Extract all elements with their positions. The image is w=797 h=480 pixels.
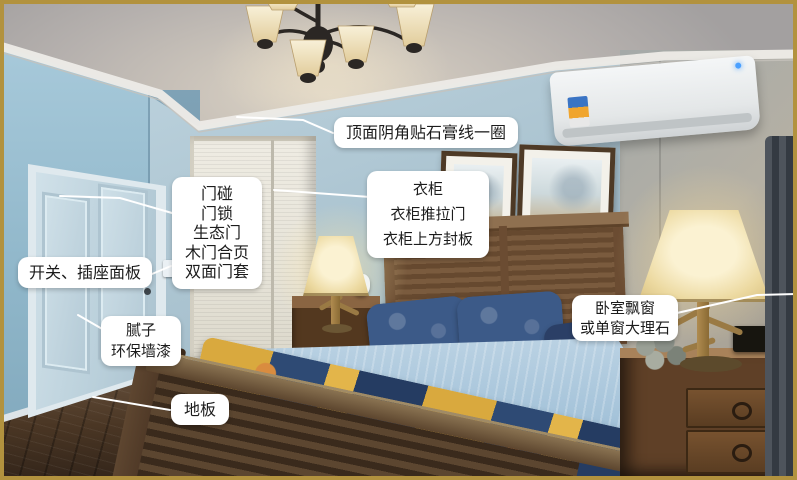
- annotation-floor: 地板: [171, 394, 229, 425]
- large-lamp-base: [680, 356, 742, 372]
- drawer-pull: [732, 444, 752, 462]
- curtain: [765, 136, 793, 480]
- annotation-wardrobe: 衣柜 衣柜推拉门 衣柜上方封板: [367, 171, 489, 258]
- annotation-bay-window: 卧室飘窗 或单窗大理石: [572, 295, 678, 341]
- annotation-wall-finish: 腻子 环保墙漆: [101, 316, 181, 366]
- drawer-pull: [732, 402, 752, 420]
- small-lamp-stem: [331, 294, 340, 326]
- large-lamp-stem: [697, 300, 709, 362]
- wardrobe-door-divider: [271, 140, 274, 356]
- energy-label-sticker: [567, 96, 590, 128]
- annotated-bedroom-photo: 顶面阴角贴石膏线一圈 门碰 门锁 生态门 木门合页 双面门套 开关、插座面板 腻…: [0, 0, 797, 480]
- annotation-switch-socket: 开关、插座面板: [18, 257, 152, 288]
- annotation-ceiling-molding: 顶面阴角贴石膏线一圈: [334, 117, 518, 148]
- door-knob: [144, 288, 151, 295]
- ac-led-light: [735, 62, 742, 69]
- small-lamp-base: [322, 324, 352, 333]
- annotation-door-hardware: 门碰 门锁 生态门 木门合页 双面门套: [172, 177, 262, 289]
